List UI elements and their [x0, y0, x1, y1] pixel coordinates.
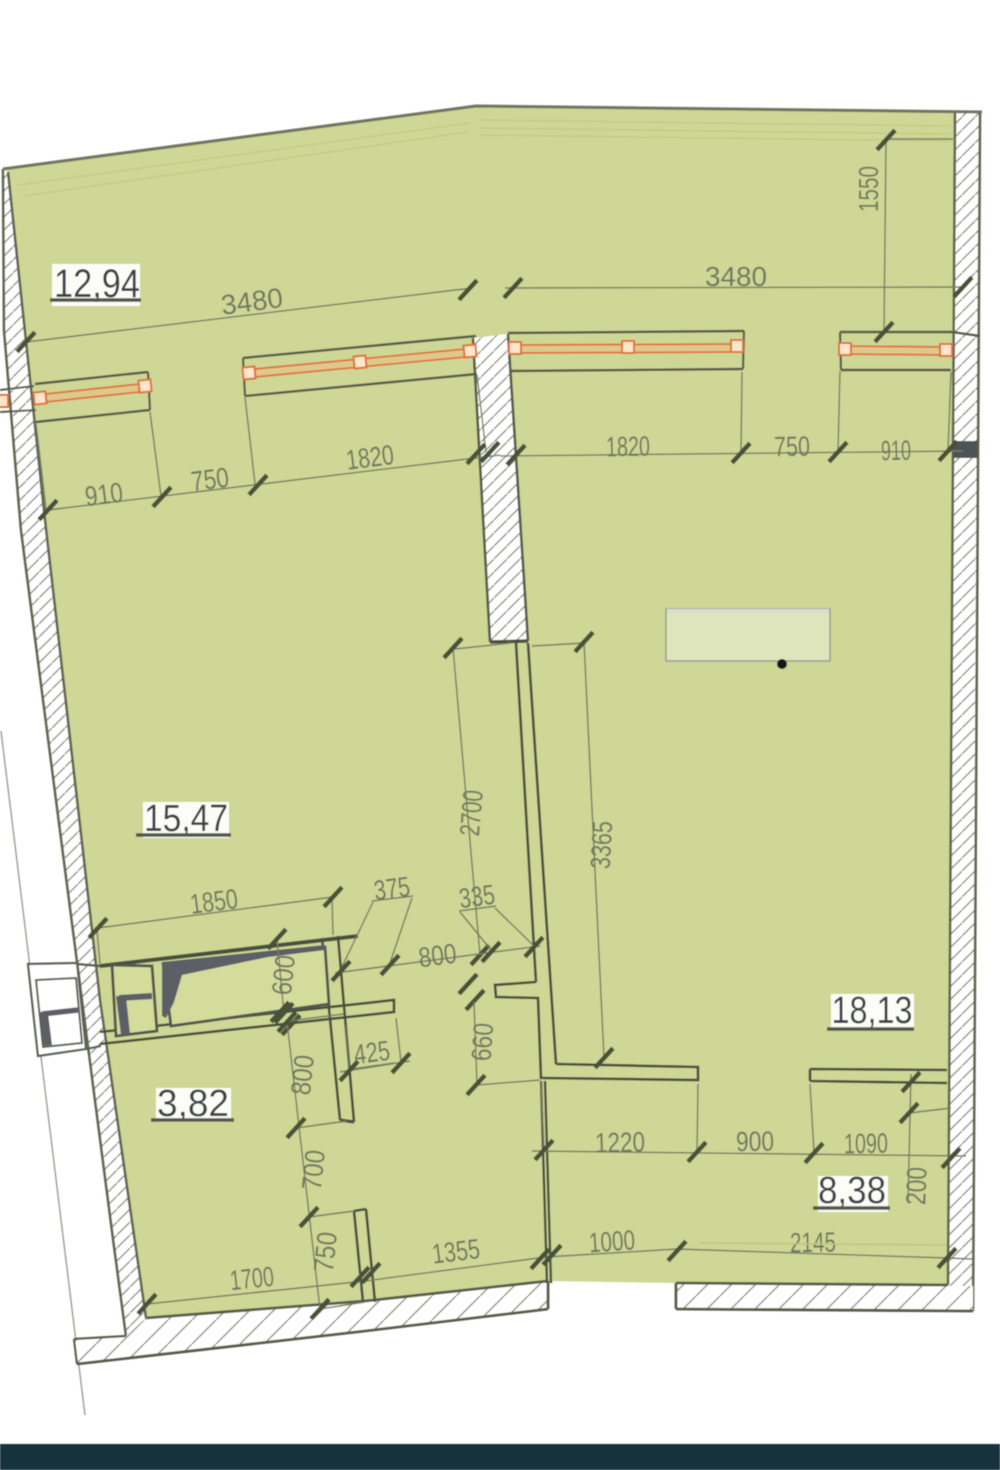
svg-text:800: 800 — [417, 938, 459, 974]
svg-text:1090: 1090 — [844, 1128, 889, 1160]
svg-text:425: 425 — [352, 1035, 392, 1070]
svg-text:18,13: 18,13 — [832, 990, 913, 1032]
svg-text:3365: 3365 — [585, 820, 618, 870]
svg-text:2700: 2700 — [454, 789, 489, 838]
svg-text:750: 750 — [774, 431, 811, 463]
svg-text:750: 750 — [308, 1230, 343, 1273]
svg-text:660: 660 — [466, 1022, 500, 1062]
svg-text:3480: 3480 — [705, 261, 767, 292]
svg-text:200: 200 — [900, 1166, 932, 1205]
svg-text:2145: 2145 — [790, 1227, 837, 1259]
svg-text:1820: 1820 — [606, 431, 651, 463]
svg-text:335: 335 — [457, 879, 497, 914]
svg-text:1220: 1220 — [595, 1126, 646, 1158]
svg-text:910: 910 — [83, 477, 125, 513]
svg-text:1700: 1700 — [228, 1261, 275, 1296]
svg-text:900: 900 — [736, 1126, 775, 1158]
svg-text:600: 600 — [266, 953, 301, 996]
svg-text:1850: 1850 — [188, 883, 240, 920]
svg-text:910: 910 — [881, 435, 912, 467]
svg-text:1000: 1000 — [588, 1224, 636, 1258]
svg-text:1550: 1550 — [853, 166, 884, 212]
svg-text:8,38: 8,38 — [818, 1170, 886, 1212]
svg-text:1355: 1355 — [430, 1233, 481, 1270]
svg-text:700: 700 — [296, 1148, 331, 1191]
svg-text:375: 375 — [372, 871, 412, 906]
svg-text:1820: 1820 — [344, 439, 396, 476]
svg-text:750: 750 — [189, 462, 231, 498]
svg-text:800: 800 — [285, 1053, 320, 1096]
